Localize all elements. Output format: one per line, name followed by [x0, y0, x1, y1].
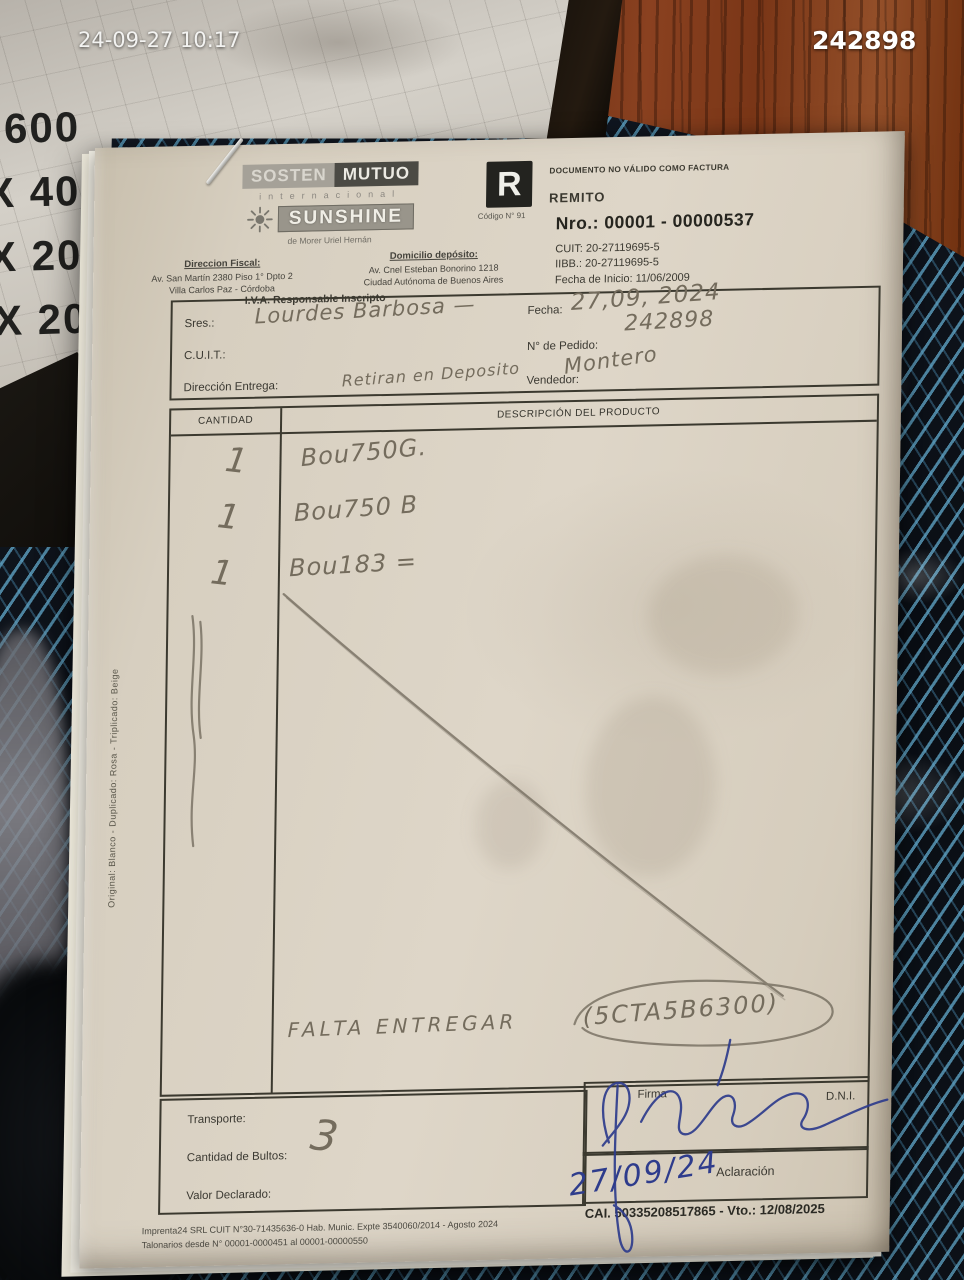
not-valid-disclaimer: DOCUMENTO NO VÁLIDO COMO FACTURA	[549, 163, 729, 176]
company-logo-block: SOSTEN MUTUO internacional SUNSHINE de M…	[212, 161, 449, 248]
sres-label: Sres.:	[184, 318, 214, 331]
photo-number-overlay: 242898	[812, 26, 916, 55]
qty-handwritten: 1	[215, 496, 243, 538]
deposit-address-line1: Av. Cnel Esteban Bonorino 1218	[369, 262, 499, 275]
sun-icon	[246, 205, 274, 234]
items-table: CANTIDAD DESCRIPCIÓN DEL PRODUCTO 1 Bou7…	[160, 394, 879, 1097]
document-number: Nro.: 00001 - 00000537	[556, 209, 755, 234]
cardboard-text-line: 600	[3, 103, 80, 153]
brand-name-part2: MUTUO	[335, 161, 419, 187]
cai-footer: CAI. 50335208517865 - Vto.: 12/08/2025	[585, 1201, 825, 1221]
cuit-label: C.U.I.T.:	[184, 349, 226, 362]
deposit-address: Domicilio depósito: Av. Cnel Esteban Bon…	[321, 247, 546, 290]
deposit-address-line2: Ciudad Autónoma de Buenos Aires	[364, 274, 504, 287]
remito-paper: SOSTEN MUTUO internacional SUNSHINE de M…	[79, 131, 904, 1269]
brand-subtitle: internacional	[212, 188, 448, 203]
description-handwritten: Bou750 B	[293, 490, 418, 527]
photo-of-remito-document: 600 X 400 X 200 X 20 SOSTEN MUTUO intern…	[0, 0, 964, 1280]
deposit-address-label: Domicilio depósito:	[390, 249, 478, 262]
description-column-header: DESCRIPCIÓN DEL PRODUCTO	[280, 402, 877, 426]
printer-footer: Imprenta24 SRL CUIT N°30-71435636-0 Hab.…	[142, 1218, 499, 1252]
transport-box: Transporte: Cantidad de Bultos: Valor De…	[158, 1090, 588, 1215]
brand-product-name: SUNSHINE	[278, 203, 415, 232]
missing-delivery-code-handwritten: (5CTA5B6300)	[582, 989, 779, 1031]
table-header-row: CANTIDAD DESCRIPCIÓN DEL PRODUCTO	[171, 396, 877, 437]
packages-label: Cantidad de Bultos:	[187, 1150, 288, 1164]
document-code: Código N° 91	[478, 211, 526, 221]
customer-fields-box: Sres.: C.U.I.T.: Dirección Entrega: Fech…	[169, 286, 880, 401]
camera-timestamp: 24-09-27 10:17	[78, 28, 241, 52]
signature-label: Firma	[637, 1088, 667, 1101]
description-handwritten: Bou750G.	[300, 433, 428, 472]
brand-name-part1: SOSTEN	[243, 163, 335, 189]
delivery-value-handwritten: Retiran en Deposito	[341, 359, 520, 391]
transport-label: Transporte:	[187, 1113, 246, 1126]
qty-handwritten: 1	[223, 440, 251, 482]
fiscal-address: Direccion Fiscal: Av. San Martín 2380 Pi…	[117, 255, 327, 298]
document-type: REMITO	[549, 189, 606, 205]
qty-column-header: CANTIDAD	[171, 414, 280, 427]
description-handwritten: Bou183 =	[289, 547, 417, 582]
date-note-handwritten: 242898	[624, 307, 714, 337]
missing-delivery-note-handwritten: FALTA ENTREGAR	[288, 1009, 518, 1042]
brand-owner: de Morer Uriel Hernán	[212, 233, 448, 248]
cardboard-text-line: X 20	[0, 295, 89, 345]
packages-value-handwritten: 3	[307, 1110, 342, 1162]
document-letter-box: R	[486, 161, 533, 208]
fiscal-address-line1: Av. San Martín 2380 Piso 1° Dpto 2	[151, 271, 292, 284]
fiscal-address-label: Direccion Fiscal:	[184, 258, 260, 271]
sres-value-handwritten: Lourdes Barbosa —	[254, 292, 475, 328]
qty-handwritten: 1	[208, 552, 236, 594]
signature-box: Firma D.N.I.	[583, 1076, 870, 1156]
declared-value-label: Valor Declarado:	[186, 1189, 271, 1203]
copies-side-note: Original: Blanco - Duplicado: Rosa - Tri…	[106, 568, 121, 908]
company-tax-lines: CUIT: 20-27119695-5 IIBB.: 20-27119695-5…	[555, 240, 691, 289]
date-label: Fecha:	[527, 304, 562, 317]
dni-label: D.N.I.	[826, 1090, 856, 1103]
table-column-divider	[271, 408, 283, 1092]
delivery-label: Dirección Entrega:	[184, 380, 279, 394]
